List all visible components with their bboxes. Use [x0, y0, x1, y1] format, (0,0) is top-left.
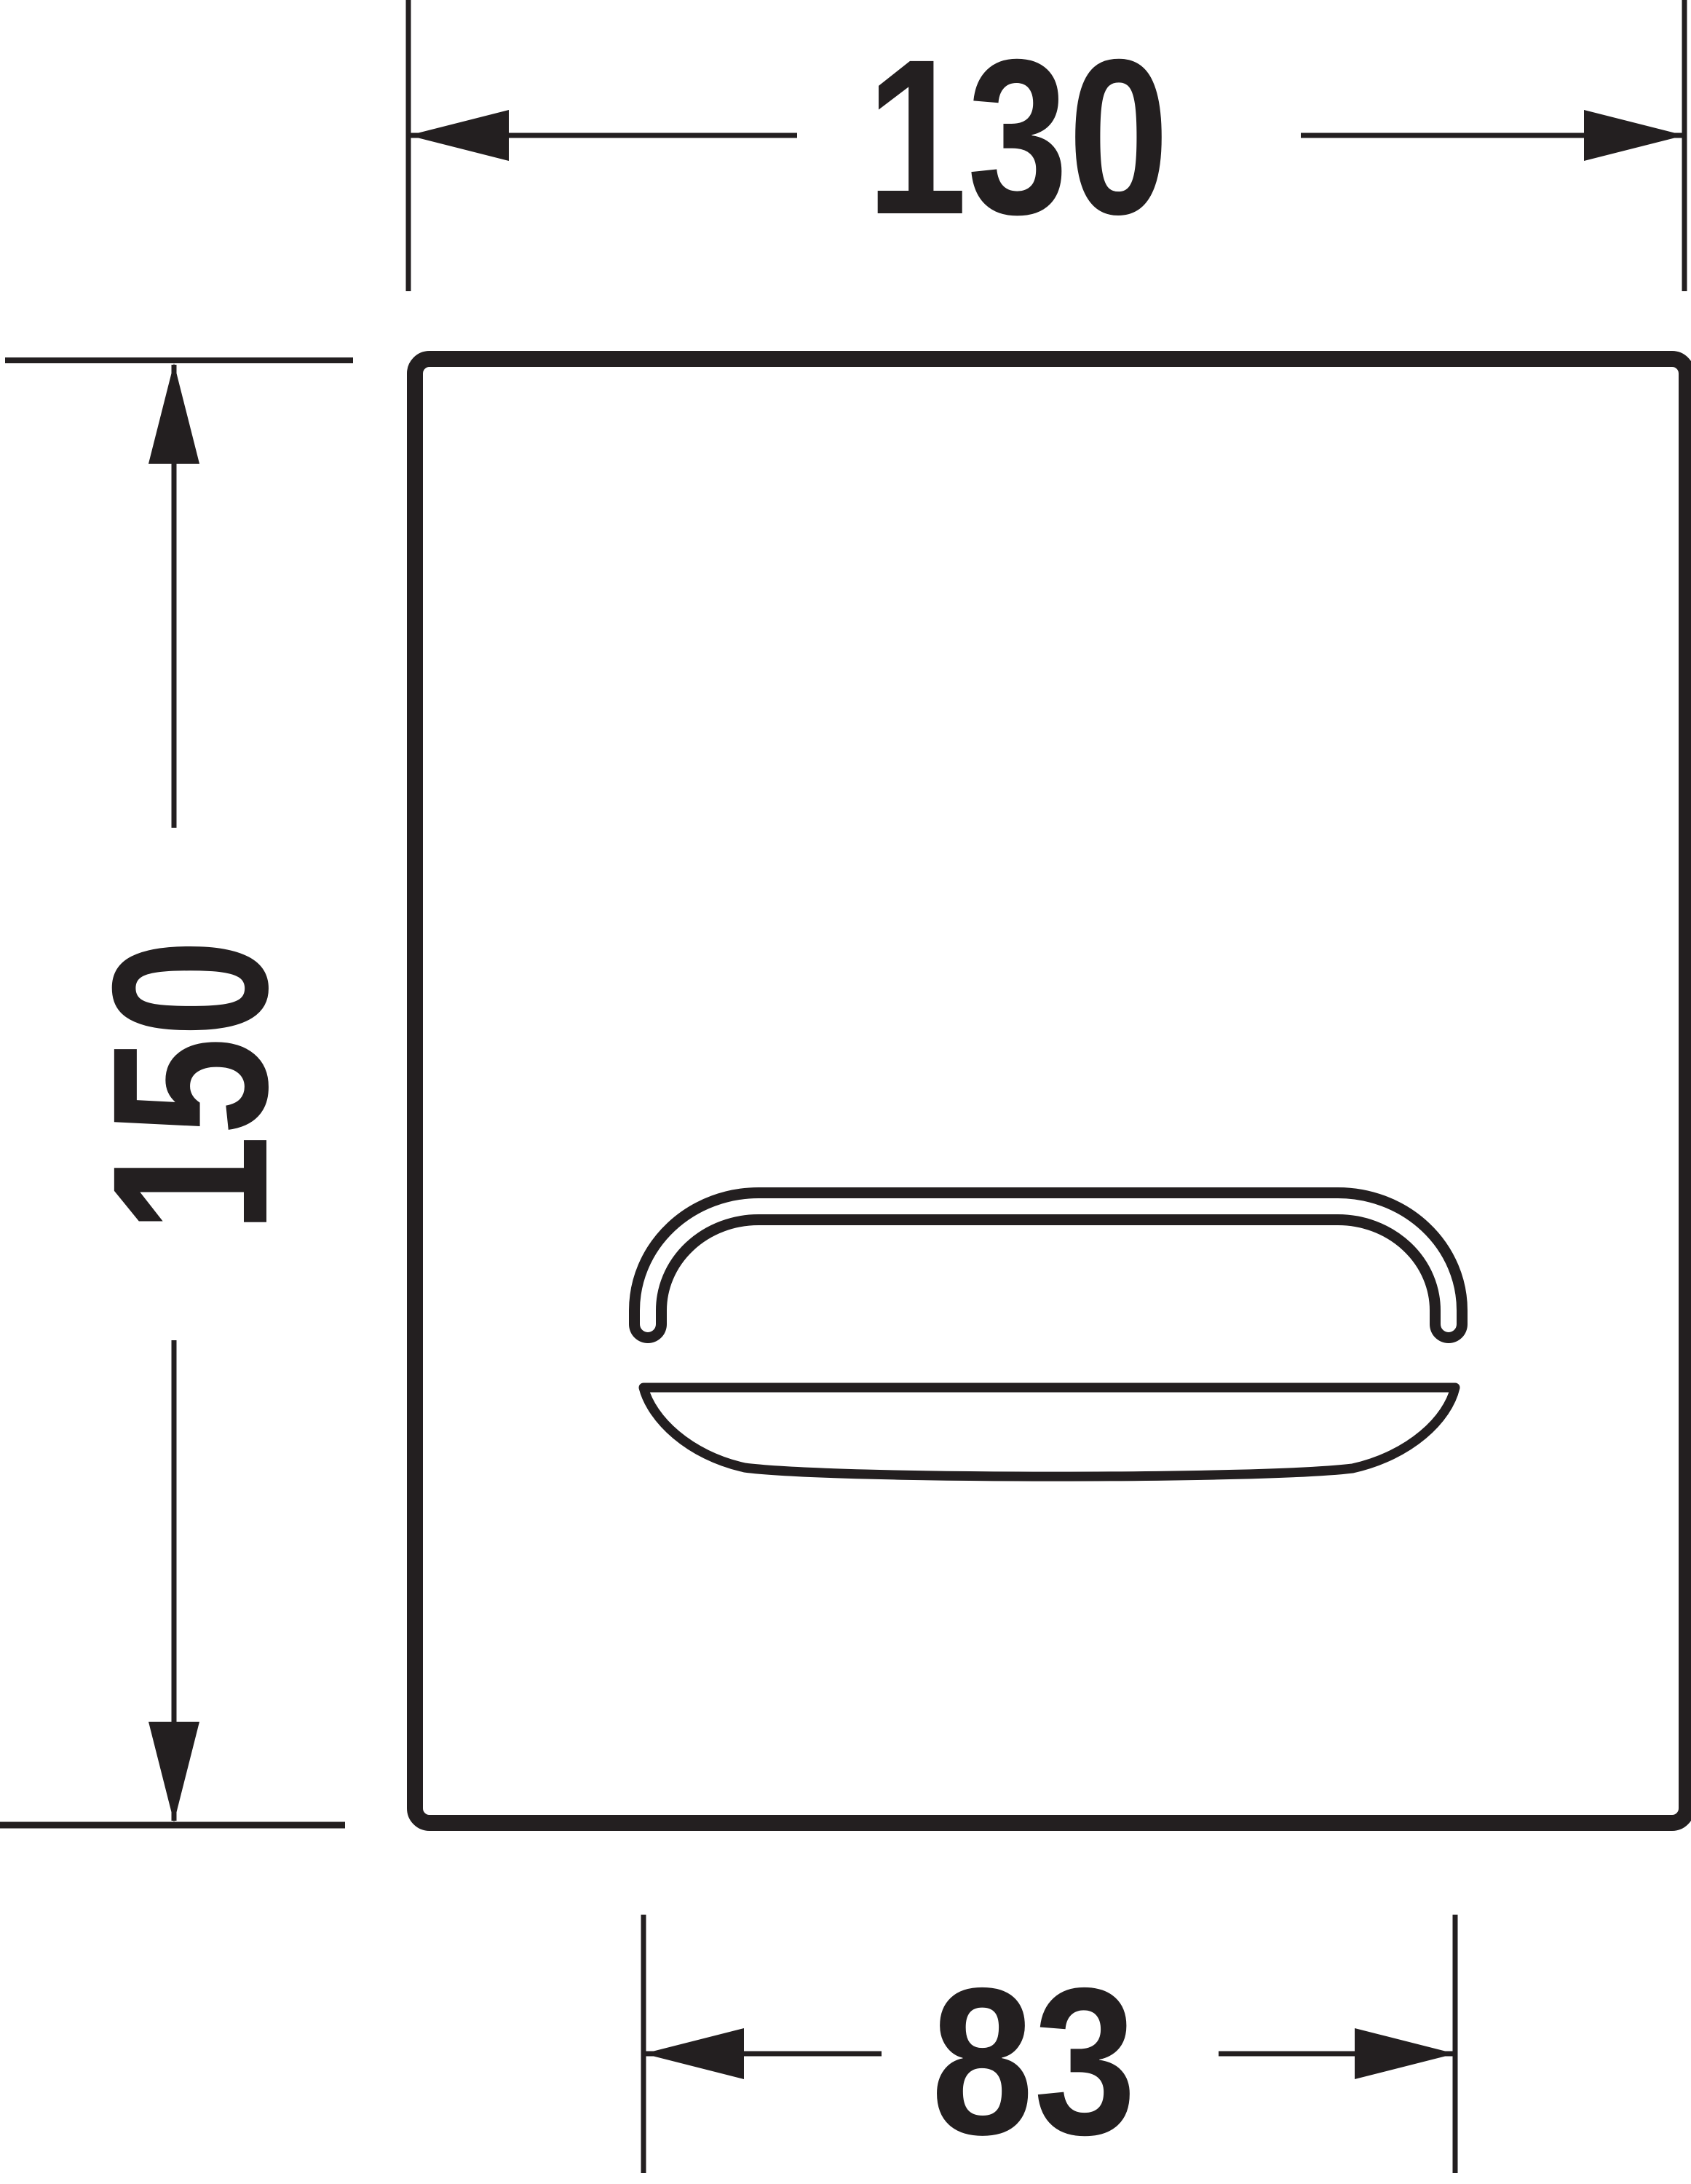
svg-text:83: 83	[931, 1944, 1136, 2179]
svg-text:130: 130	[866, 14, 1169, 261]
svg-text:150: 150	[67, 939, 314, 1233]
